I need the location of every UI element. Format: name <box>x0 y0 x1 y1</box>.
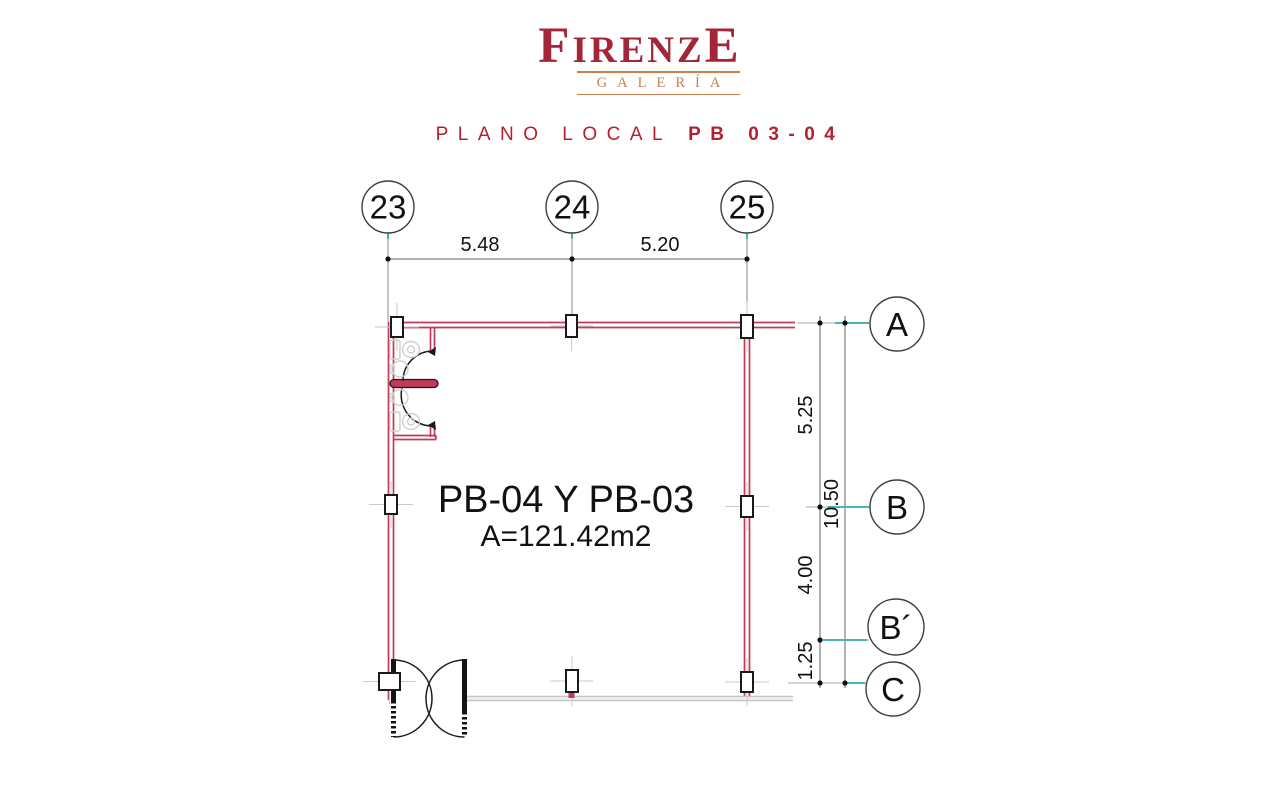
toilet-bowl <box>408 418 415 425</box>
axis-label-B: B <box>886 489 908 526</box>
column-25C <box>741 672 753 692</box>
dim-label-A-B: 5.25 <box>795 396 817 435</box>
axis-label-C: C <box>881 671 905 708</box>
column-25B <box>741 496 753 517</box>
top-dimension-chain: 5.48 5.20 <box>385 234 749 262</box>
side-dimension-chain: 5.25 10.50 4.00 1.25 <box>788 316 871 688</box>
entrance-double-door <box>394 659 465 737</box>
column-23C <box>379 673 400 690</box>
top-grid-axes: 23 24 25 <box>362 181 773 322</box>
toilet-bowl <box>408 346 415 353</box>
toilet-tank <box>390 412 400 431</box>
axis-label-23: 23 <box>370 189 407 226</box>
column-25A <box>741 315 753 338</box>
dim-dot <box>569 256 574 261</box>
column-23B <box>385 495 397 514</box>
dim-dot <box>817 680 822 685</box>
dim-dot <box>842 320 847 325</box>
axis-label-25: 25 <box>729 189 766 226</box>
toilet-fixture-top <box>390 340 420 359</box>
door-swing-arrow <box>428 421 436 430</box>
room-name: PB-04 Y PB-03 <box>438 479 694 521</box>
column-24A <box>566 315 577 337</box>
dim-dot <box>817 637 822 642</box>
dim-label-total: 10.50 <box>821 479 843 529</box>
stall-door-swing-bottom <box>401 388 433 426</box>
dim-dot <box>842 680 847 685</box>
room-label-group: PB-04 Y PB-03 A=121.42m2 <box>438 479 694 553</box>
floor-plan-canvas: 23 24 25 5.48 5.20 <box>0 0 1280 800</box>
axis-label-Bp: B´ <box>880 609 913 646</box>
door-swing-arrow <box>428 347 436 356</box>
column-24C <box>566 670 578 692</box>
stall-divider-wall <box>390 380 438 388</box>
dim-dot <box>817 320 822 325</box>
dim-label-Bp-C: 1.25 <box>795 642 817 681</box>
side-grid-axes: A B B´ C <box>866 297 924 716</box>
dim-label-B-Bp: 4.00 <box>795 556 817 595</box>
dim-dot <box>744 256 749 261</box>
dim-dot <box>385 256 390 261</box>
toilet-tank <box>390 340 400 359</box>
axis-label-A: A <box>886 306 908 343</box>
toilet-bowl <box>403 342 420 358</box>
dim-label-23-24: 5.48 <box>461 234 500 256</box>
axis-label-24: 24 <box>554 189 591 226</box>
room-area: A=121.42m2 <box>481 520 652 553</box>
dim-label-24-25: 5.20 <box>641 234 680 256</box>
column-23A <box>391 317 403 337</box>
toilet-fixture-bottom <box>390 412 420 431</box>
